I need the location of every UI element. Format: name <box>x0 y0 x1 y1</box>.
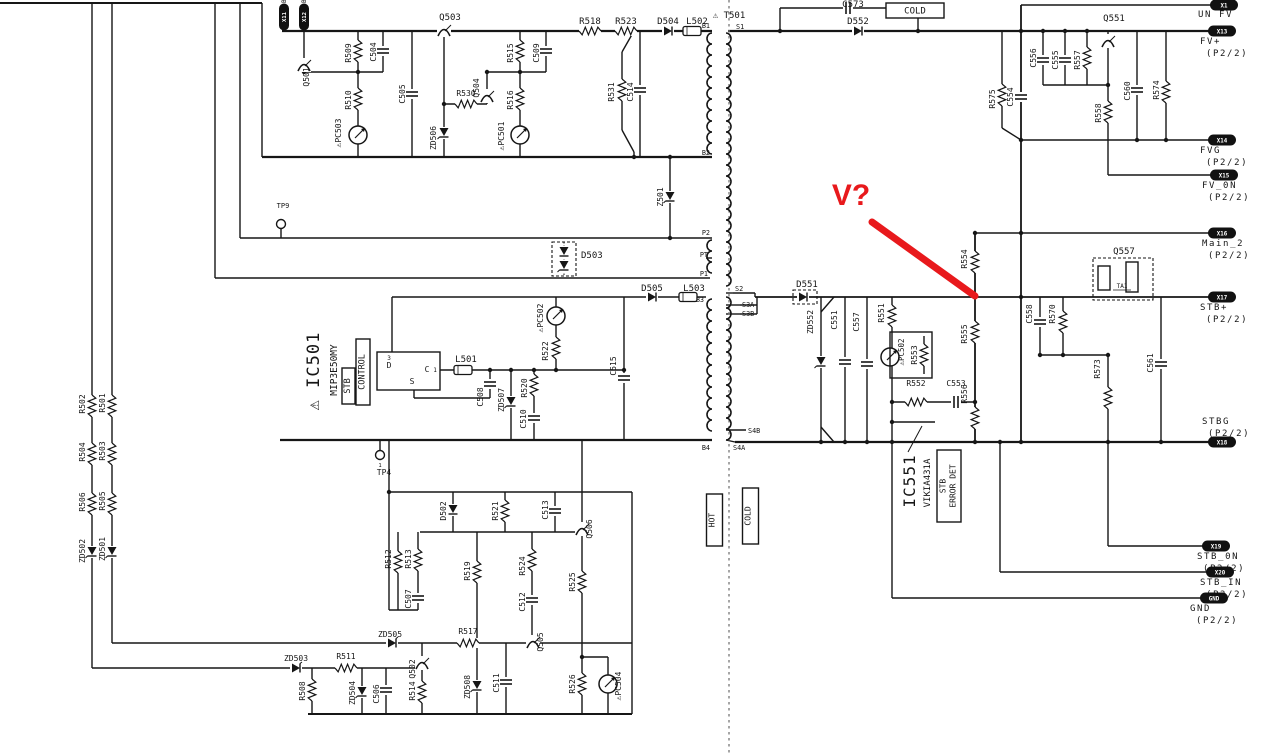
label-r511: R511 <box>336 652 355 661</box>
junction-dot <box>916 29 920 33</box>
label-zd501: ZD501 <box>98 537 107 561</box>
label-r517: R517 <box>458 627 477 636</box>
label-pinS: S <box>410 377 415 386</box>
t501-primary-winding <box>707 299 712 431</box>
junction-dot <box>973 400 977 404</box>
tap-label-s3b: S3B <box>742 310 754 318</box>
label-r522: R522 <box>541 341 550 360</box>
label-c558: C558 <box>1025 304 1034 323</box>
component-box <box>1126 262 1138 292</box>
label-zd508: ZD508 <box>463 675 472 699</box>
label-r515: R515 <box>506 43 515 62</box>
symbol-bg <box>377 46 389 56</box>
junction-dot <box>865 440 869 444</box>
label-r501: R501 <box>98 393 107 412</box>
label-zd502: ZD502 <box>78 539 87 563</box>
tap-label-p1: P1 <box>700 270 708 278</box>
inductor-icon <box>683 27 701 36</box>
wires-layer <box>0 0 1211 753</box>
label-r525: R525 <box>568 572 577 591</box>
label-tp9: TP9 <box>277 202 290 210</box>
label-pc502b: ⚠PC502 <box>897 338 906 365</box>
junction-dot <box>973 231 977 235</box>
label-r513: R513 <box>404 549 413 568</box>
connector-X20-name: STB_IN <box>1200 578 1242 588</box>
label-c515: C515 <box>609 356 618 375</box>
wire <box>1002 128 1021 140</box>
junction-dot <box>1159 440 1163 444</box>
label-r518: R518 <box>579 17 601 27</box>
junction-dot <box>1164 138 1168 142</box>
schematic-canvas: Q501R509C504R510⚠PC503C505Q503ZD506R530Q… <box>0 0 1285 753</box>
label-zd552: ZD552 <box>806 310 815 334</box>
label-d503: D503 <box>581 251 603 261</box>
tap-label-s4b: S4B <box>748 427 760 435</box>
junction-dot <box>668 236 672 240</box>
connector-X16-detail: (P2/2) <box>1208 251 1250 261</box>
symbol-bg <box>406 89 418 99</box>
connector-X13-name: FV+ <box>1200 37 1221 47</box>
label-c557: C557 <box>852 312 861 331</box>
label-r514: R514 <box>408 681 417 700</box>
label-r554: R554 <box>960 249 969 268</box>
symbol-bg <box>484 379 496 389</box>
label-r526: R526 <box>568 674 577 693</box>
symbol-bg <box>500 677 512 687</box>
junction-dot <box>580 655 584 659</box>
tap-label-s3a: S3A <box>742 301 754 309</box>
junction-dot <box>973 440 977 444</box>
label-q506: Q506 <box>585 519 594 538</box>
label-c555: C555 <box>1051 50 1060 69</box>
junction-dot <box>518 70 522 74</box>
symbol-bg <box>1034 317 1046 327</box>
junction-dot <box>1019 231 1023 235</box>
junction-dot <box>1061 353 1065 357</box>
junction-dot <box>1106 440 1110 444</box>
connector-X12-pill-id: X12 <box>302 12 308 22</box>
label-r510: R510 <box>344 90 353 109</box>
label-c554: C554 <box>1006 87 1015 106</box>
power-supply-schematic: Q501R509C504R510⚠PC503C505Q503ZD506R530Q… <box>0 0 1285 753</box>
label-r506: R506 <box>78 492 87 511</box>
label-c512: C512 <box>518 592 527 611</box>
label-d551: D551 <box>796 280 818 290</box>
symbol-bg <box>634 85 646 95</box>
label-q557: Q557 <box>1113 247 1135 257</box>
connector-X15-detail: (P2/2) <box>1208 193 1250 203</box>
label-d504: D504 <box>657 17 679 27</box>
label-zd504: ZD504 <box>348 681 357 705</box>
junction-dot <box>1019 138 1023 142</box>
label-pinC: C <box>425 365 430 374</box>
tap-label-b4: B4 <box>702 444 710 452</box>
label-tp4: TP4 <box>377 468 392 477</box>
label-vikia: VIKIA431A <box>923 458 933 507</box>
junction-dot <box>532 368 536 372</box>
label-d552: D552 <box>847 17 869 27</box>
label-r553: R553 <box>910 345 919 364</box>
symbol-bg <box>412 593 424 603</box>
connector-X14-name: FVG <box>1200 146 1221 156</box>
tap-label-b2: B2 <box>702 149 710 157</box>
test-point-icon <box>376 451 385 460</box>
junction-dot <box>1041 29 1045 33</box>
label-c514: C514 <box>626 82 635 101</box>
tap-label-b1: B1 <box>702 22 710 30</box>
label-c510: C510 <box>519 409 528 428</box>
junction-dot <box>1019 29 1023 33</box>
junction-dot <box>442 102 446 106</box>
label-r504: R504 <box>78 442 87 461</box>
label-q505: Q505 <box>536 632 545 651</box>
connector-X17-pill-id: X17 <box>1217 295 1228 301</box>
label-r505: R505 <box>98 491 107 510</box>
label-r551: R551 <box>877 303 886 322</box>
junction-dot <box>843 440 847 444</box>
connector-X15-pill-id: X15 <box>1219 173 1230 179</box>
wire <box>821 297 834 312</box>
label-r574: R574 <box>1152 80 1161 99</box>
label-r520: R520 <box>520 378 529 397</box>
label-zd503: ZD503 <box>284 654 308 663</box>
label-q502: Q502 <box>408 659 417 678</box>
label-ic501: ⚠ IC501 <box>304 332 324 411</box>
label-pc502a: ⚠PC502 <box>536 303 545 332</box>
symbol-bg <box>549 506 561 516</box>
boxed-label-stbc2: CONTROL <box>358 354 368 390</box>
label-pinD: D <box>387 361 392 370</box>
junction-dot <box>1019 440 1023 444</box>
label-c505: C505 <box>398 84 407 103</box>
label-c508: C508 <box>476 387 485 406</box>
tap-label-s2: S2 <box>735 285 743 293</box>
label-r531: R531 <box>607 82 616 101</box>
symbol-bg <box>1015 92 1027 102</box>
label-tp4n: 1 <box>378 463 381 469</box>
label-r575: R575 <box>988 89 997 108</box>
label-r512: R512 <box>384 549 393 568</box>
junction-dot <box>890 400 894 404</box>
tap-label-p2: P2 <box>702 229 710 237</box>
junction-dot <box>1106 353 1110 357</box>
symbol-bg <box>861 359 873 369</box>
connector-X19-name: STB_0N <box>1197 552 1239 562</box>
annotation-text: V? <box>832 179 870 212</box>
label-r552: R552 <box>906 379 925 388</box>
symbol-bg <box>528 413 540 423</box>
label-zd505: ZD505 <box>378 630 402 639</box>
label-d502: D502 <box>439 501 448 520</box>
connector-X11-pin: B <box>281 0 288 3</box>
junction-dot <box>890 420 894 424</box>
component-box <box>1098 266 1110 290</box>
label-ta1: TA1 <box>1117 283 1128 290</box>
junction-dot <box>356 70 360 74</box>
junction-dot <box>1038 353 1042 357</box>
symbol-bg <box>1155 359 1167 369</box>
symbol-bg <box>1059 55 1071 65</box>
label-l503: L503 <box>683 284 705 294</box>
tap-label-pt: PT <box>700 251 708 259</box>
junction-dot <box>485 70 489 74</box>
junction-dot <box>998 440 1002 444</box>
label-q504: Q504 <box>472 78 481 97</box>
wire <box>821 427 834 442</box>
wire <box>622 130 634 152</box>
label-zd506: ZD506 <box>429 126 438 150</box>
annotation-layer: V? <box>832 179 975 296</box>
label-pc501: ⚠PC501 <box>497 121 506 150</box>
connector-X1-name: UN FV <box>1198 10 1233 20</box>
symbol-bg <box>1037 55 1049 65</box>
label-r502: R502 <box>78 394 87 413</box>
connector-X15-name: FV_0N <box>1202 181 1237 191</box>
tap-label-s4a: S4A <box>733 444 745 452</box>
junction-dot <box>632 155 636 159</box>
label-c561: C561 <box>1146 353 1155 372</box>
junction-dot <box>387 490 391 494</box>
label-c507: C507 <box>404 589 413 608</box>
junction-dot <box>554 368 558 372</box>
junction-dot <box>819 440 823 444</box>
boxed-label-cold_top: COLD <box>904 7 926 17</box>
junction-dot <box>668 155 672 159</box>
connector-GND-detail: (P2/2) <box>1196 616 1238 626</box>
junction-dot <box>1106 83 1110 87</box>
label-r521: R521 <box>491 501 500 520</box>
junction-dot <box>890 440 894 444</box>
label-r570: R570 <box>1048 304 1057 323</box>
label-r508: R508 <box>298 681 307 700</box>
symbol-bg <box>540 46 552 56</box>
connector-X14-pill-id: X14 <box>1217 138 1228 144</box>
label-r523: R523 <box>615 17 637 27</box>
label-ic551: IC551 <box>900 454 919 507</box>
label-c506: C506 <box>372 684 381 703</box>
label-c553: C553 <box>946 379 965 388</box>
label-c509: C509 <box>532 43 541 62</box>
connector-X19-pill-id: X19 <box>1211 544 1222 550</box>
boxed-label-stbc1: STB <box>343 378 353 393</box>
label-r524: R524 <box>518 556 527 575</box>
boxed-label-stbe1: STB <box>939 479 948 494</box>
label-t501: ⚠ T501 <box>713 11 746 21</box>
label-r573: R573 <box>1093 359 1102 378</box>
label-c551: C551 <box>830 310 839 329</box>
connector-X18-pill-id: X18 <box>1217 440 1228 446</box>
connector-X14-detail: (P2/2) <box>1206 158 1248 168</box>
label-c513: C513 <box>541 500 550 519</box>
label-c560: C560 <box>1123 81 1132 100</box>
connector-X13-pill-id: X13 <box>1217 29 1228 35</box>
junction-dot <box>622 368 626 372</box>
t501-primary-winding <box>707 33 712 154</box>
connector-X18-name: STBG <box>1202 417 1230 427</box>
label-q551: Q551 <box>1103 14 1125 24</box>
symbol-bg <box>839 357 851 367</box>
label-r557: R557 <box>1073 50 1082 69</box>
tap-label-s1: S1 <box>736 23 744 31</box>
label-r519: R519 <box>463 561 472 580</box>
connector-X11-pill-id: X11 <box>282 11 288 22</box>
connector-X1-pill-id: X1 <box>1221 3 1228 9</box>
junction-dot <box>1085 29 1089 33</box>
connector-GND-pill-id: GND <box>1209 596 1220 602</box>
label-pc503: ⚠PC503 <box>334 118 343 147</box>
connector-X13-detail: (P2/2) <box>1206 49 1248 59</box>
label-c504: C504 <box>369 42 378 61</box>
boxed-label-hot: HOT <box>708 513 717 528</box>
symbol-bg <box>526 595 538 605</box>
junction-dot <box>1019 295 1023 299</box>
boxed-label-stbe2: ERROR DET <box>949 464 958 508</box>
connector-X20-pill-id: X20 <box>1215 570 1226 576</box>
label-d505: D505 <box>641 284 663 294</box>
label-q501: Q501 <box>302 67 311 86</box>
junction-dot <box>488 368 492 372</box>
label-r555: R555 <box>960 324 969 343</box>
label-pin1: 1 <box>433 367 437 374</box>
label-r558: R558 <box>1094 103 1103 122</box>
connector-X12-pin: B <box>301 0 308 3</box>
dashed-component-box <box>1093 258 1153 300</box>
connector-X16-pill-id: X16 <box>1217 231 1228 237</box>
connector-X18-detail: (P2/2) <box>1208 429 1250 439</box>
label-c573: C573 <box>842 0 864 10</box>
label-l501: L501 <box>455 355 477 365</box>
label-z501: Z501 <box>656 187 665 206</box>
inductor-icon <box>454 366 472 375</box>
symbol-bg <box>380 685 392 695</box>
connector-X17-detail: (P2/2) <box>1206 315 1248 325</box>
symbol-bg <box>618 373 630 383</box>
label-mip: MIP3E50MY <box>329 344 340 396</box>
junction-dot <box>509 368 513 372</box>
symbol-bg <box>1131 85 1143 95</box>
label-r516: R516 <box>506 90 515 109</box>
label-r503: R503 <box>98 441 107 460</box>
label-q503: Q503 <box>439 13 461 23</box>
test-point-icon <box>277 220 286 229</box>
boxed-label-cold_mid: COLD <box>744 506 753 525</box>
wire <box>908 426 922 452</box>
label-pc504: ⚠PC504 <box>614 671 623 700</box>
connector-X17-name: STB+ <box>1200 303 1228 313</box>
junction-dot <box>778 29 782 33</box>
label-zd507: ZD507 <box>497 388 506 412</box>
label-c511: C511 <box>492 673 501 692</box>
junction-dot <box>1135 138 1139 142</box>
label-c556: C556 <box>1029 48 1038 67</box>
junction-dot <box>1063 29 1067 33</box>
connector-X16-name: Main_2 <box>1202 239 1244 249</box>
connector-GND-name: GND <box>1190 604 1211 614</box>
label-r509: R509 <box>344 43 353 62</box>
tap-label-b3: B3 <box>696 296 704 304</box>
